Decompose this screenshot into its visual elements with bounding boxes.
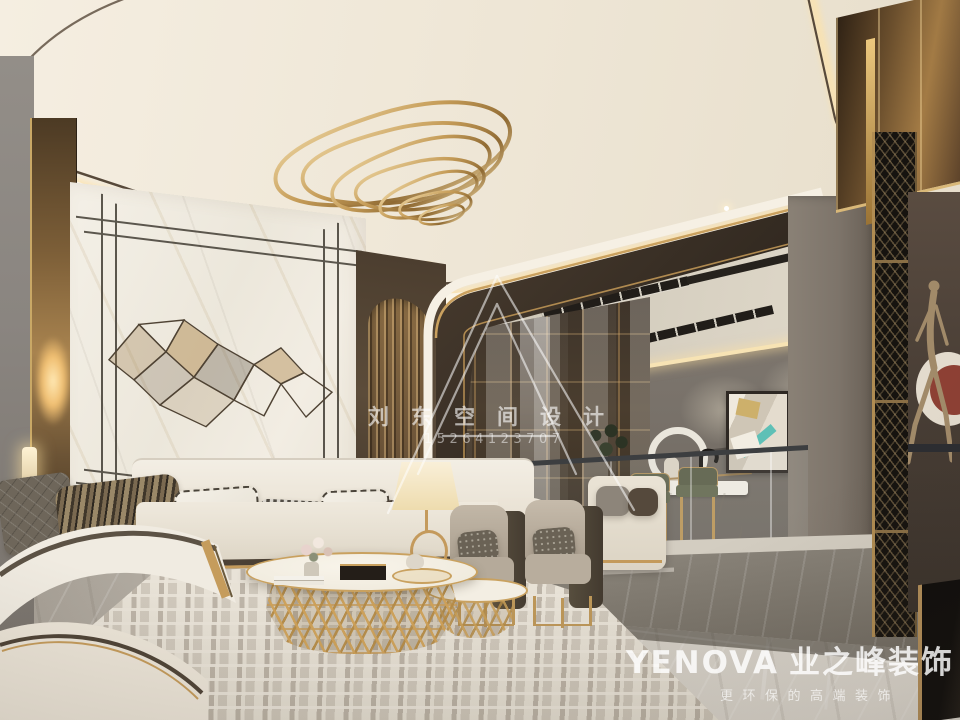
sculpture-wall xyxy=(908,192,960,612)
brand-tagline: 更环保的高端装饰 xyxy=(626,685,954,704)
walking-figure-sculpture xyxy=(908,270,952,540)
books xyxy=(274,576,324,585)
railing-bar xyxy=(908,444,960,452)
gold-ring-chandelier xyxy=(255,72,535,282)
designer-watermark-title: 刘东空间设计 xyxy=(368,401,626,431)
designer-watermark-phone: 15264123707 xyxy=(424,432,564,447)
coffee-table-main xyxy=(240,548,482,660)
decor-boxes xyxy=(340,564,386,580)
brand-logo-line: YENOVA业之峰装饰 xyxy=(626,637,954,682)
gold-tray xyxy=(392,568,452,584)
sofa-curved-arm xyxy=(0,505,240,720)
interior-photo: 刘东空间设计 15264123707 YENOVA业之峰装饰 更环保的高端装饰 xyxy=(0,0,960,720)
brand-latin: YENOVA xyxy=(626,645,779,681)
teapot xyxy=(406,554,424,569)
designer-logo-triangle xyxy=(370,266,650,526)
brand-cjk: 业之峰装饰 xyxy=(789,645,954,681)
brand-watermark: YENOVA业之峰装饰 更环保的高端装饰 xyxy=(626,637,954,704)
wall-sconce-glow xyxy=(34,336,72,426)
